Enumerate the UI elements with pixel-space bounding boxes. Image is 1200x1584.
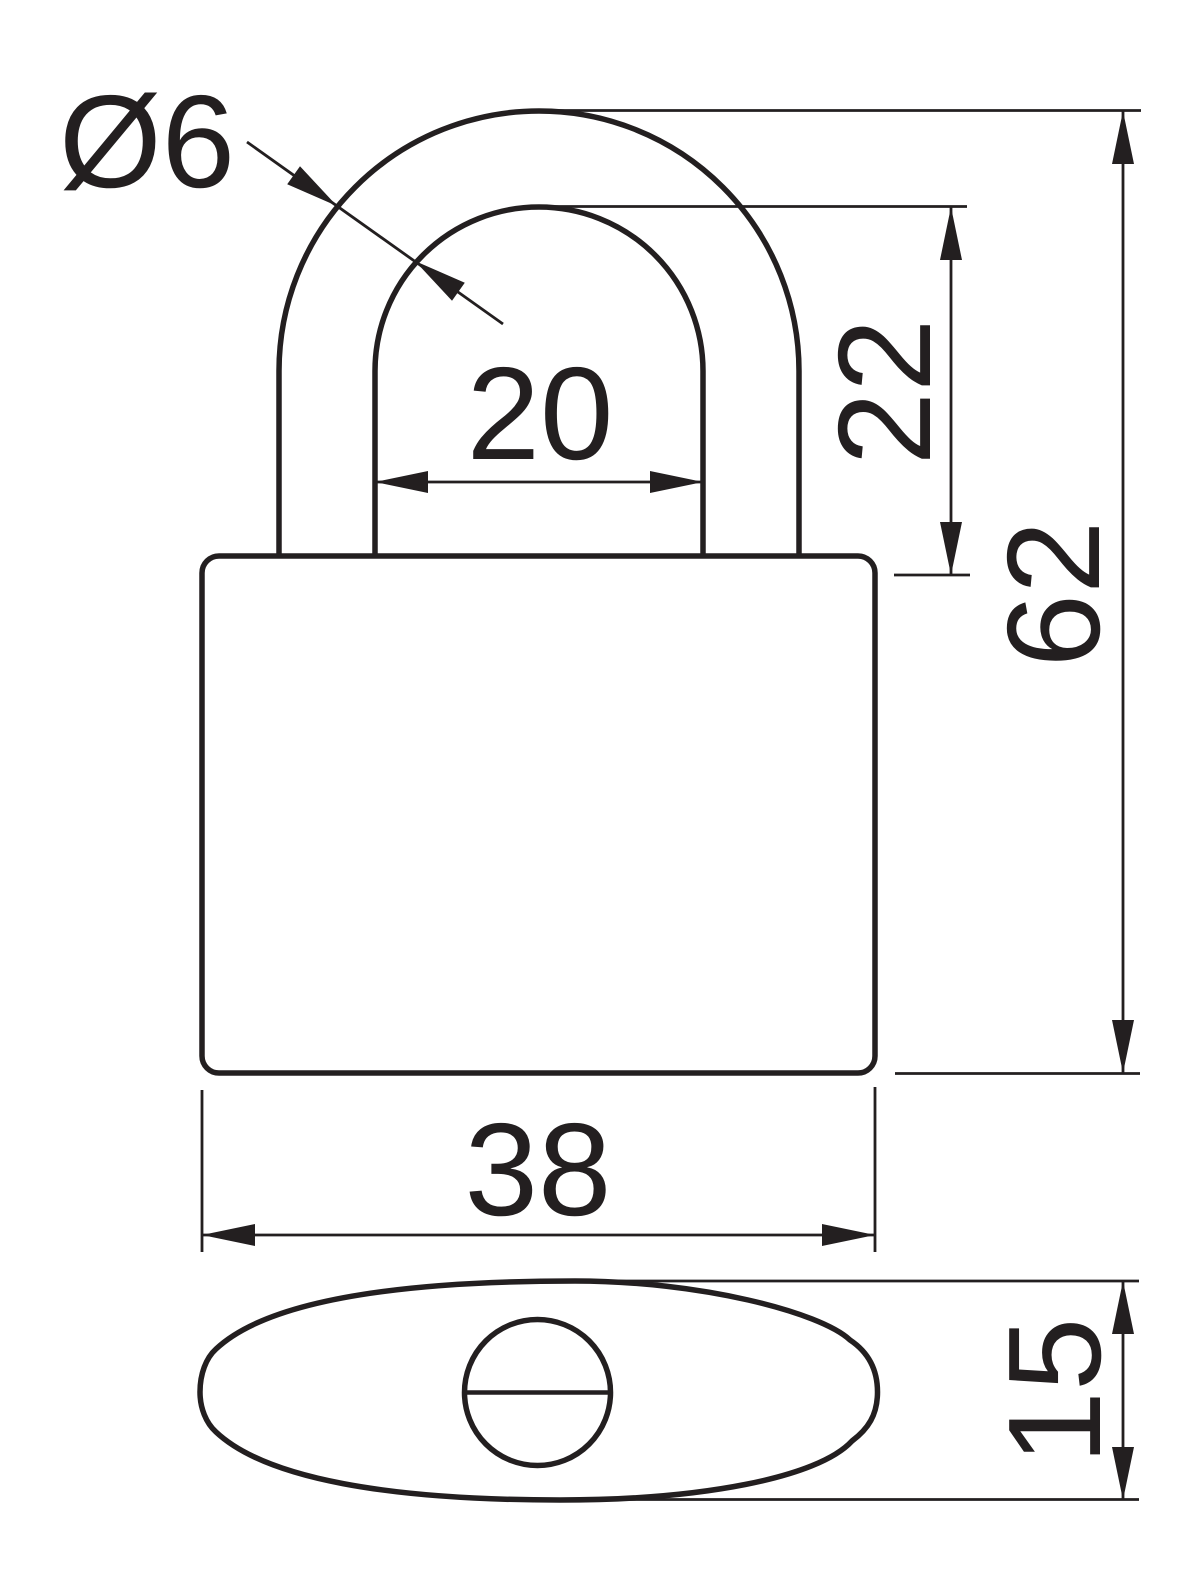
svg-text:22: 22 [811,319,958,466]
svg-text:Ø6: Ø6 [59,68,235,215]
svg-text:38: 38 [465,1096,612,1243]
svg-text:15: 15 [981,1318,1128,1465]
svg-text:62: 62 [980,521,1127,668]
svg-text:20: 20 [467,340,614,487]
